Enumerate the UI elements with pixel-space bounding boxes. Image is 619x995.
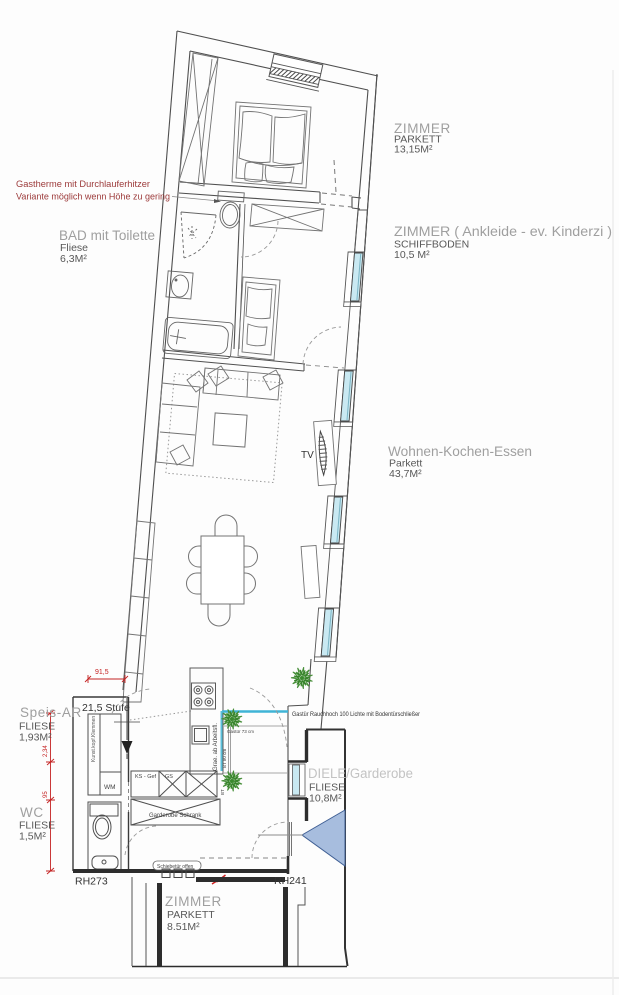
svg-text:KS - Gef: KS - Gef bbox=[135, 774, 157, 780]
svg-text:ZIMMER: ZIMMER bbox=[165, 894, 222, 909]
svg-text:10,5 M²: 10,5 M² bbox=[394, 249, 430, 261]
svg-text:Gastherme mit Durchlauferhitze: Gastherme mit Durchlauferhitzer bbox=[16, 179, 150, 190]
svg-text:Gastür Rauchhoch 100 Lichte mi: Gastür Rauchhoch 100 Lichte mit Bodentür… bbox=[292, 711, 421, 718]
svg-text:TV: TV bbox=[301, 450, 314, 461]
svg-text:DIELE/Garderobe: DIELE/Garderobe bbox=[308, 766, 413, 781]
svg-text:91,5: 91,5 bbox=[95, 669, 109, 676]
svg-text:8.51M²: 8.51M² bbox=[167, 921, 200, 933]
svg-text:RH273: RH273 bbox=[75, 876, 108, 888]
svg-text:Variante möglich wenn Höhe zu: Variante möglich wenn Höhe zu gering bbox=[16, 192, 170, 203]
svg-text:Garderobe Schrank: Garderobe Schrank bbox=[149, 813, 202, 819]
svg-text:BT 80 cm: BT 80 cm bbox=[222, 749, 227, 768]
svg-text:WM: WM bbox=[104, 784, 116, 791]
svg-text:BAD mit Toilette: BAD mit Toilette bbox=[59, 228, 155, 243]
svg-text:Speis-AR: Speis-AR bbox=[20, 705, 82, 720]
svg-text:21,5 Stufe: 21,5 Stufe bbox=[82, 702, 130, 714]
svg-text:Gastür 73 cm: Gastür 73 cm bbox=[227, 729, 254, 734]
svg-text:95: 95 bbox=[43, 791, 49, 798]
svg-text:Grae. ab Arbeitsfl.: Grae. ab Arbeitsfl. bbox=[213, 723, 219, 771]
svg-text:WC: WC bbox=[20, 805, 44, 820]
svg-text:10,8M²: 10,8M² bbox=[309, 793, 342, 805]
svg-text:6,3M²: 6,3M² bbox=[60, 253, 87, 265]
svg-text:Kunst.kopf.Klemmen: Kunst.kopf.Klemmen bbox=[91, 716, 97, 762]
svg-text:GS: GS bbox=[165, 774, 173, 780]
svg-text:BT: BT bbox=[220, 789, 225, 795]
svg-text:RH241: RH241 bbox=[274, 875, 307, 887]
svg-text:1,5M²: 1,5M² bbox=[19, 831, 46, 843]
svg-text:PARKETT: PARKETT bbox=[167, 909, 215, 921]
svg-text:1,93M²: 1,93M² bbox=[19, 732, 52, 744]
svg-text:2,34: 2,34 bbox=[43, 745, 49, 757]
svg-text:ZIMMER ( Ankleide - ev. Kinde: ZIMMER ( Ankleide - ev. Kinderzi ) bbox=[394, 224, 612, 239]
svg-text:13,15M²: 13,15M² bbox=[394, 144, 433, 156]
svg-text:43,7M²: 43,7M² bbox=[389, 468, 422, 480]
